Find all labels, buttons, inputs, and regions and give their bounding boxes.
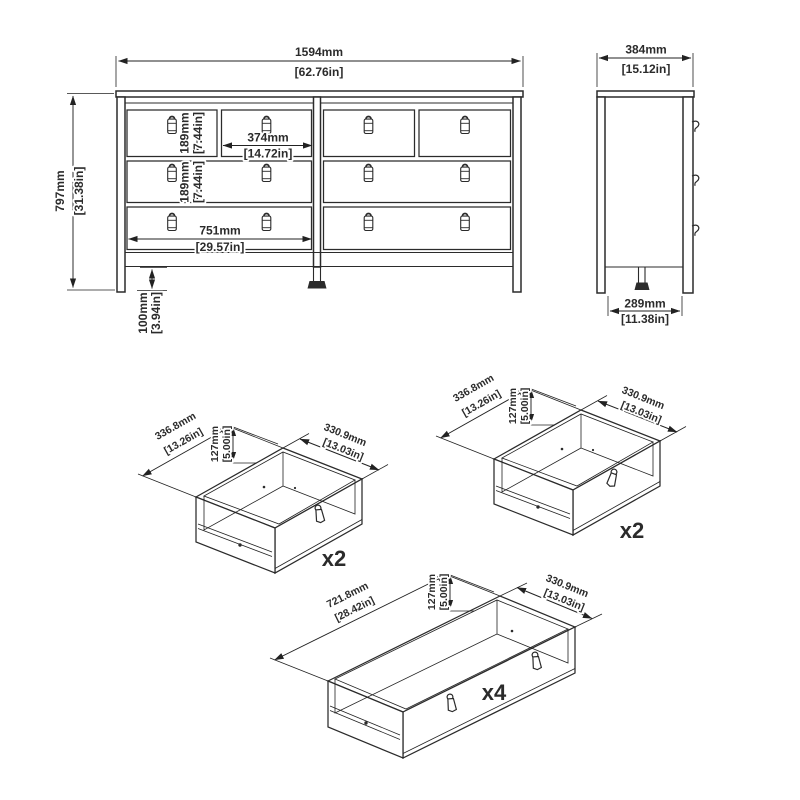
front-center-leg [308, 267, 327, 289]
screw-hole [511, 630, 514, 633]
drawing-canvas: 1594mm [62.76in] 797mm [31.38in] 189mm [… [0, 0, 800, 800]
small-drawer-width-mm-label: 374mm [247, 131, 288, 145]
leg-foot [308, 281, 327, 289]
front-view: 1594mm [62.76in] 797mm [31.38in] 189mm [… [53, 45, 523, 334]
screw-hole [561, 448, 564, 451]
row2-height-mm-label: 189mm [178, 161, 192, 202]
small-drawer-a-view: 336.8mm [13.26in] 330.9mm [13.03in] 127m… [138, 410, 388, 573]
drawer-front [127, 161, 312, 203]
side-view: 384mm [15.12in] 289mm [11.38in] [597, 43, 699, 327]
drawer-b-height-mm-label: 127mm [507, 388, 519, 424]
rail-screw [536, 505, 539, 508]
drawer-handle-icon [461, 165, 470, 182]
drawer-handle-icon [364, 117, 373, 134]
drawer-handle-icon [364, 165, 373, 182]
drawer-handle-icon [461, 214, 470, 231]
large-drawer-height-in-label: [5.00in] [438, 574, 450, 611]
screw-hole [294, 487, 296, 489]
rail-screw [238, 543, 241, 546]
screw-hole [592, 449, 594, 451]
side-top-board [597, 91, 694, 97]
drawer-handle-icon [262, 165, 271, 182]
rail-screw [364, 721, 367, 724]
row2-height-in-label: [7.44in] [191, 161, 205, 203]
row1-height-in-label: [7.44in] [191, 112, 205, 154]
front-right-panel [513, 97, 521, 292]
leg-height-mm-label: 100mm [136, 292, 150, 333]
front-center-divider [314, 97, 321, 267]
large-drawer-count-label: x4 [482, 680, 507, 705]
leg-foot [635, 283, 650, 291]
front-top-board [116, 91, 523, 97]
front-height-mm-label: 797mm [53, 170, 67, 211]
side-back-panel [597, 97, 605, 293]
drawer-a-height-in-label: [5.00in] [221, 426, 233, 463]
drawer-handle-icon [168, 214, 177, 231]
drawer-a-count-label: x2 [322, 546, 346, 571]
side-depth-mm-label: 384mm [625, 43, 666, 57]
dimension-diagram: 1594mm [62.76in] 797mm [31.38in] 189mm [… [0, 0, 800, 800]
drawer-handle-icon [461, 117, 470, 134]
front-height-in-label: [31.38in] [72, 167, 86, 216]
drawer-handle-icon [168, 165, 177, 182]
side-depth-in-label: [15.12in] [622, 62, 671, 76]
drawer-handle-icon [262, 214, 271, 231]
drawer-a-height-mm-label: 127mm [209, 426, 221, 462]
drawer-handle-icon [168, 117, 177, 134]
drawer-b-height-in-label: [5.00in] [519, 388, 531, 425]
small-drawer-b-view: 336.8mm [13.26in] 330.9mm [13.03in] 127m… [436, 372, 686, 543]
side-base-in-label: [11.38in] [621, 312, 669, 326]
drawer-front [324, 207, 511, 250]
front-width-mm-label: 1594mm [295, 45, 343, 59]
leg-height-in-label: [3.94in] [149, 292, 163, 334]
front-width-in-label: [62.76in] [295, 65, 344, 79]
wide-drawer-width-mm-label: 751mm [199, 224, 240, 238]
row1-height-mm-label: 189mm [178, 112, 192, 153]
wide-drawer-width-in-label: [29.57in] [196, 240, 245, 254]
small-drawer-width-in-label: [14.72in] [244, 147, 293, 161]
side-front-panel [683, 97, 693, 293]
large-drawer-view: 721.8mm [28.42in] 330.9mm [13.03in] 127m… [270, 572, 602, 758]
drawer-front [324, 161, 511, 203]
side-base-mm-label: 289mm [624, 297, 665, 311]
large-drawer-height-mm-label: 127mm [426, 574, 438, 610]
side-leg [635, 267, 650, 290]
drawer-handle-icon [364, 214, 373, 231]
screw-hole [263, 486, 266, 489]
front-left-panel [117, 97, 125, 292]
drawer-b-count-label: x2 [620, 518, 644, 543]
